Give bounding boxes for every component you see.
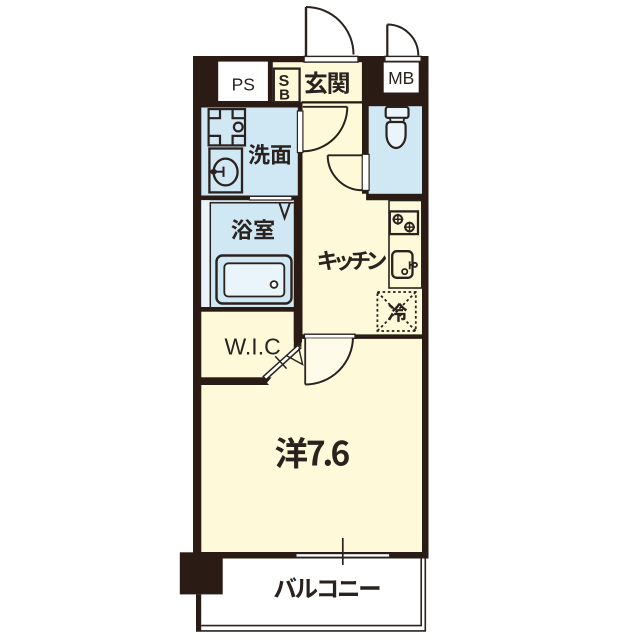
- svg-text:B: B: [279, 87, 290, 104]
- svg-text:PS: PS: [232, 74, 255, 94]
- svg-text:W.I.C: W.I.C: [224, 333, 280, 359]
- svg-text:MB: MB: [388, 68, 414, 88]
